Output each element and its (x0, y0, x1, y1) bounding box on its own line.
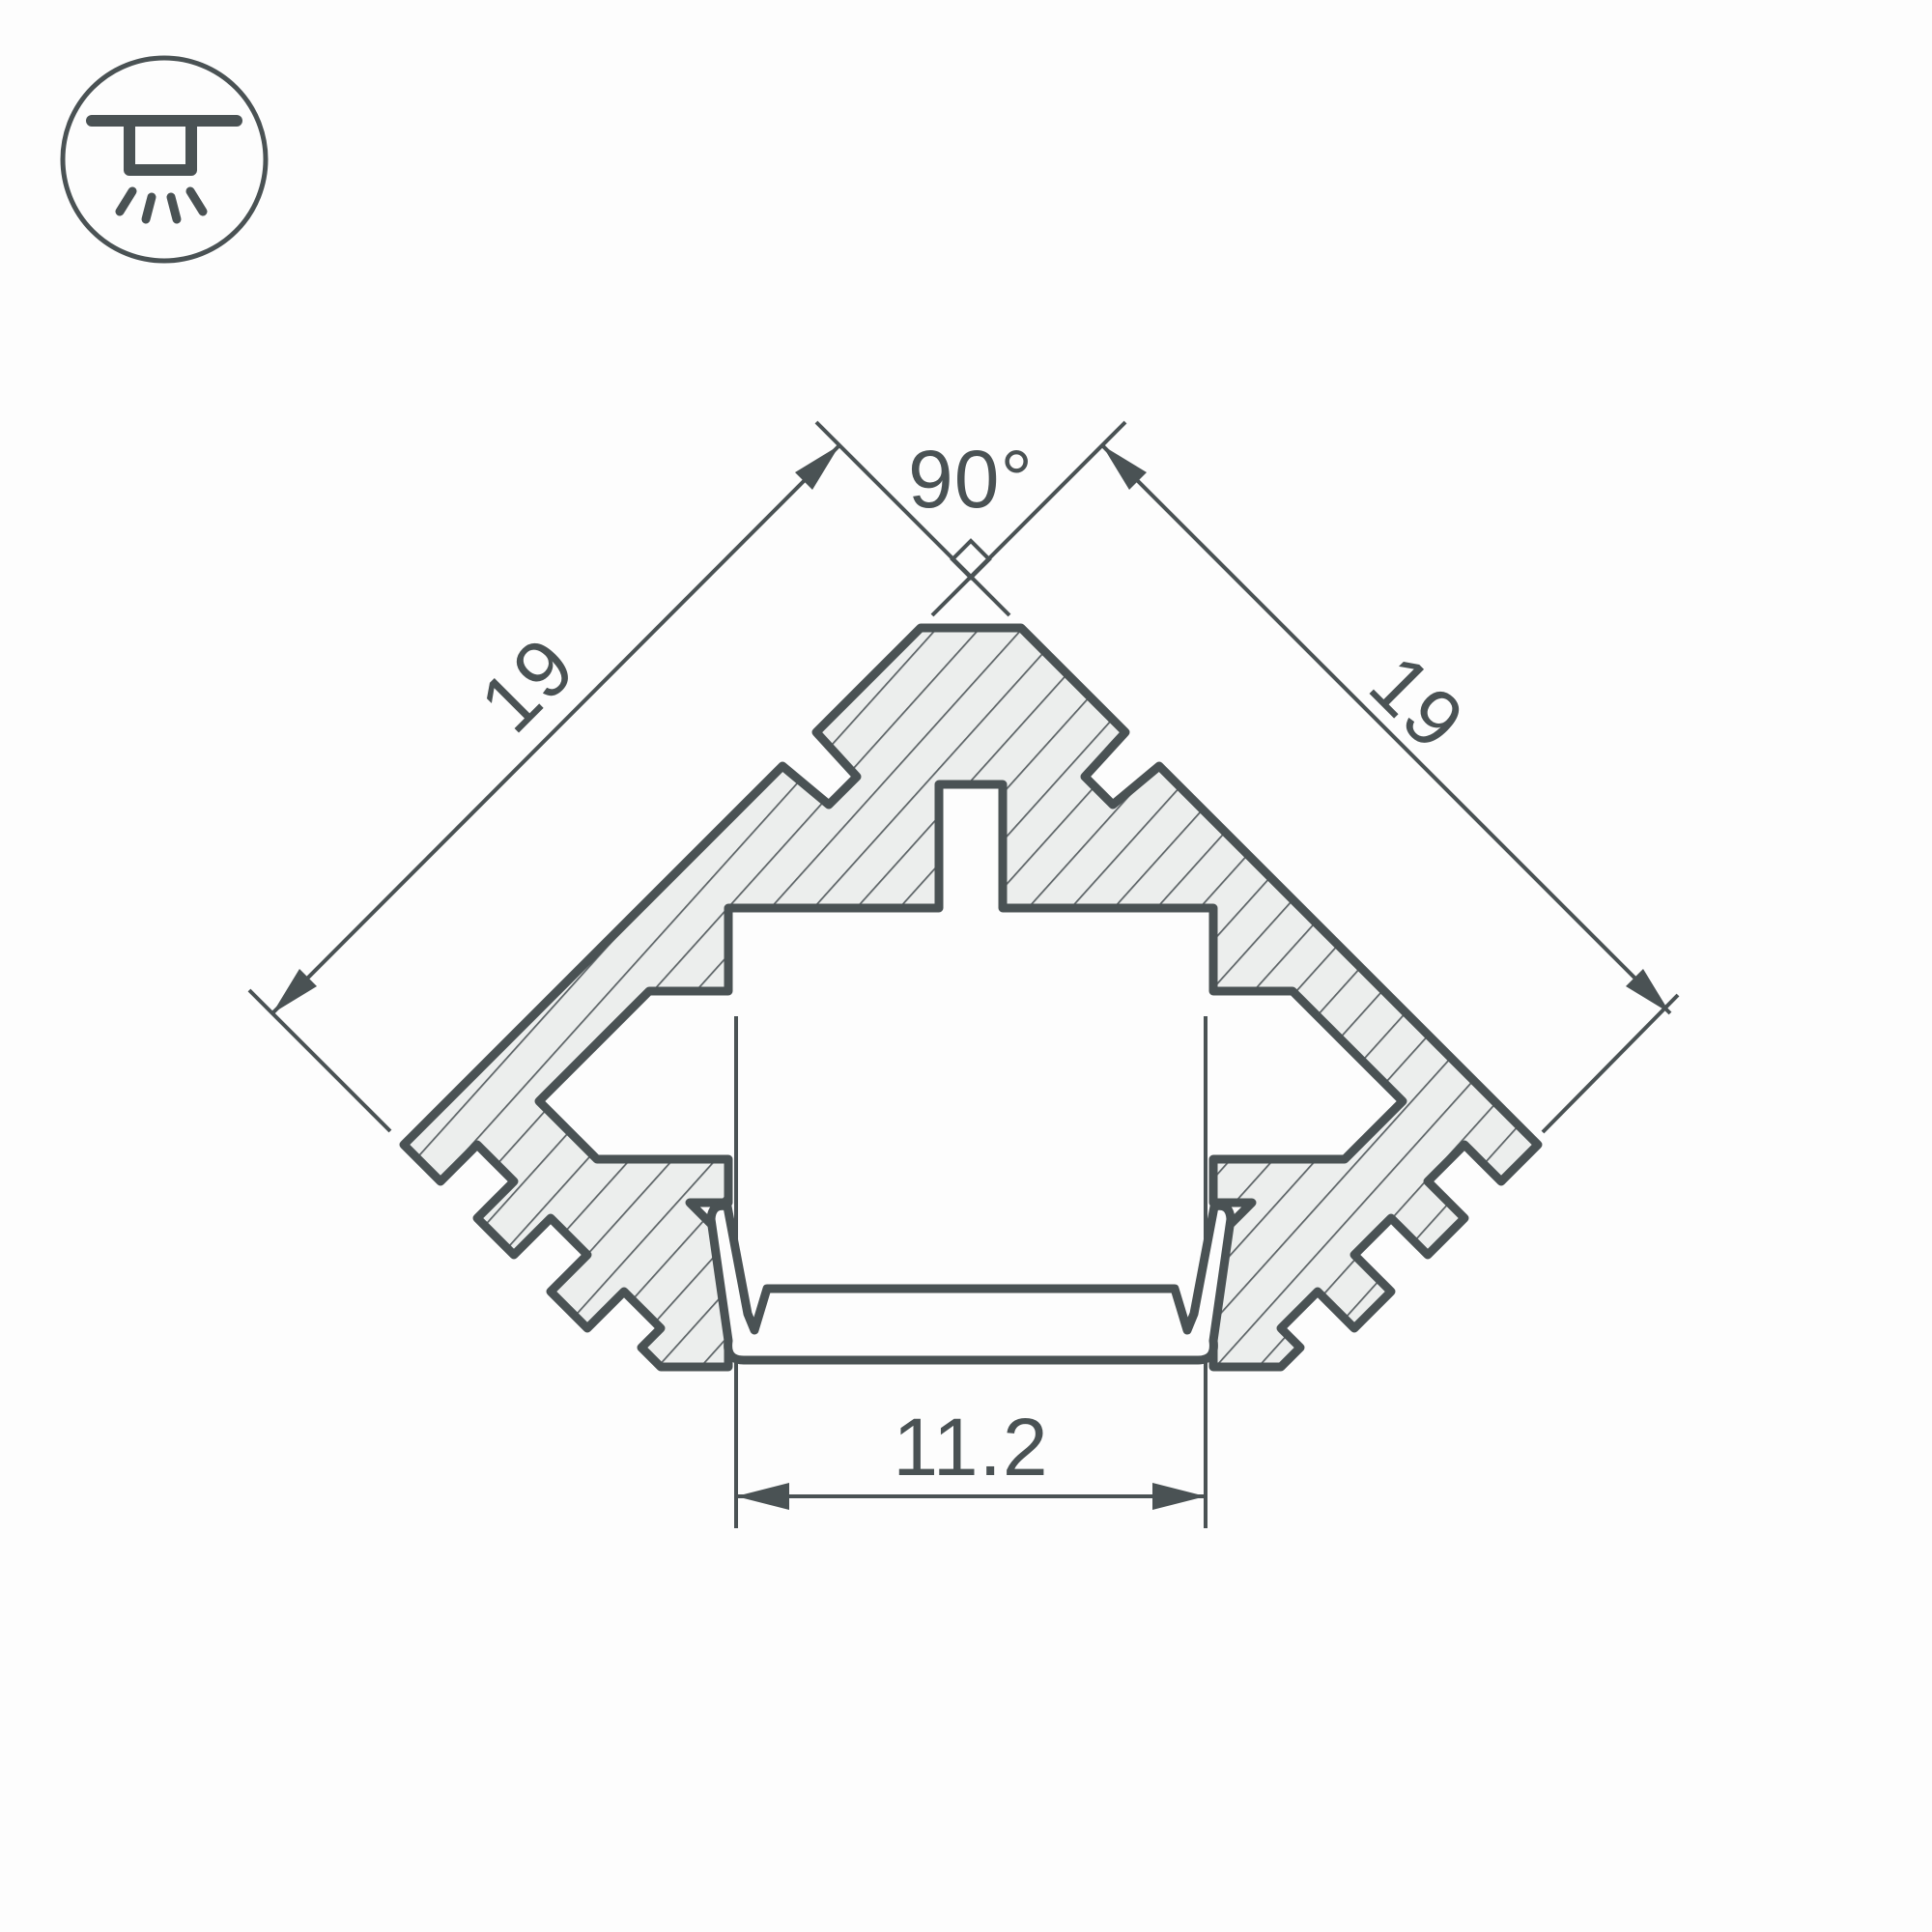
technical-drawing: 90° 19 19 11.2 (0, 0, 1932, 1932)
opening-width-label: 11.2 (893, 1402, 1048, 1492)
icon-light-ray-2 (146, 197, 152, 219)
icon-light-ray-3 (171, 197, 177, 219)
angle-label: 90° (908, 434, 1034, 525)
canvas-background (0, 0, 1932, 1932)
drawing-canvas: 90° 19 19 11.2 (0, 0, 1932, 1932)
